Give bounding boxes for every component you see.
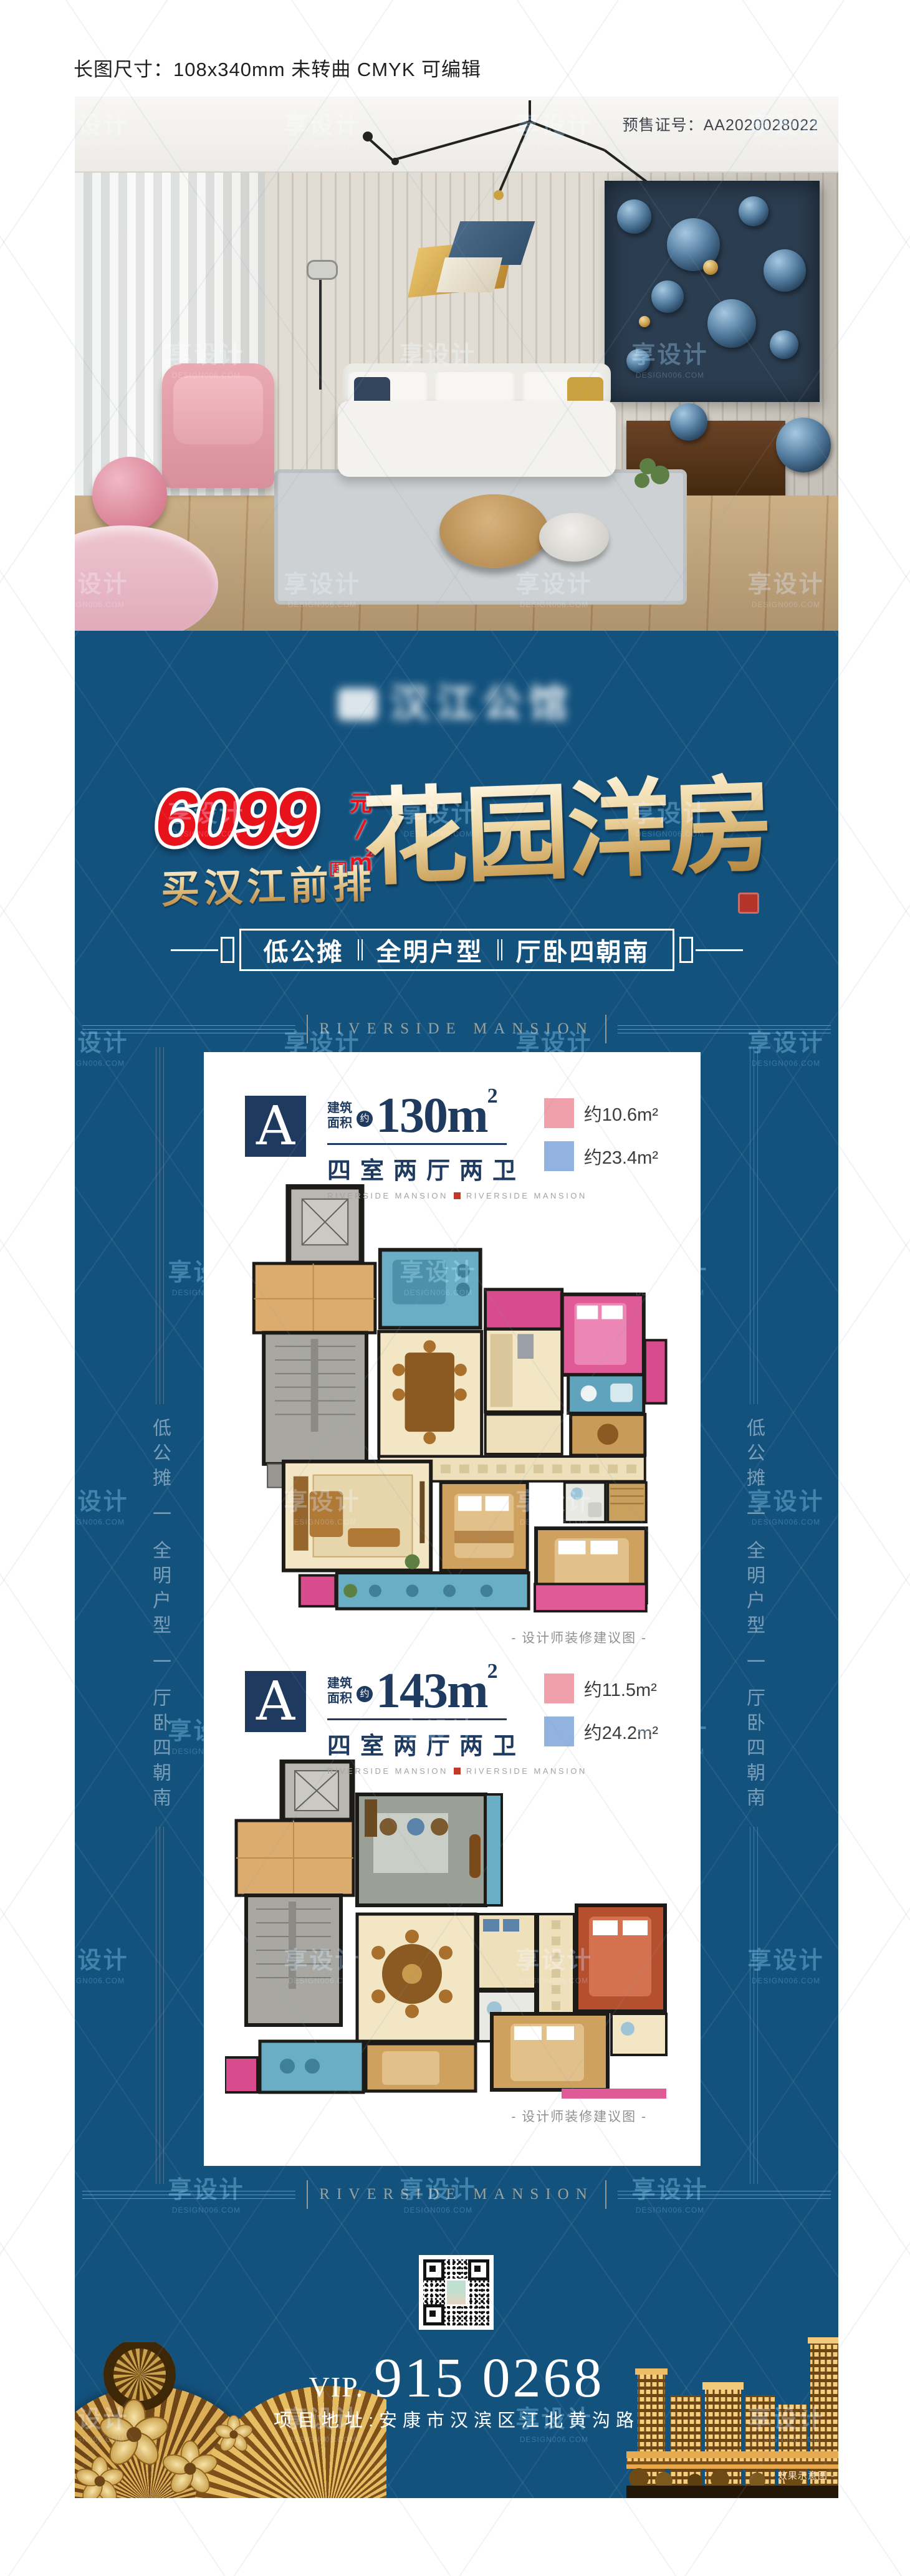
sofa-seat bbox=[338, 401, 616, 477]
banner-knob bbox=[221, 937, 234, 963]
unit-type-badge: A bbox=[245, 1671, 306, 1732]
blue-sphere bbox=[764, 249, 806, 292]
qr-center-photo bbox=[445, 2279, 467, 2306]
watermark-item: 享设计DESIGN006.COM bbox=[846, 335, 910, 380]
selling-points-banner: 低公摊 全明户型 厅卧四朝南 bbox=[75, 929, 838, 971]
floorplan-card: A 建筑面积 约 130m 2 四室两厅两卫 RIVERSIDE MANSION… bbox=[204, 1052, 701, 2166]
logo-text: 汉江公馆 bbox=[390, 682, 575, 725]
frame-side-left: 低公摊 一 全明户型 一 厅卧四朝南 bbox=[155, 1047, 165, 2184]
wall-art-geometric bbox=[414, 221, 552, 315]
rule-bar bbox=[307, 1015, 308, 1043]
rule-lines bbox=[750, 1827, 758, 2184]
logo-mark bbox=[338, 688, 378, 721]
blue-poster: 汉江公馆 6099 6099 元 ㎡ 起 买汉江前排 花园洋房 低公摊 全明户型… bbox=[75, 631, 838, 2498]
pink-stool bbox=[92, 457, 167, 532]
rule-lines bbox=[618, 2191, 831, 2199]
price-subtitle: 买汉江前排 bbox=[160, 852, 376, 914]
plan-caption: - 设计师装修建议图 - bbox=[204, 1628, 701, 1647]
plant bbox=[635, 458, 672, 498]
frame-title-bottom: RIVERSIDE MANSION bbox=[82, 2180, 831, 2209]
gold-sphere bbox=[703, 260, 718, 275]
qr-finder-icon bbox=[423, 2259, 444, 2281]
rule-bar bbox=[605, 2180, 606, 2209]
gold-sphere bbox=[639, 316, 650, 327]
vip-phone: VIP.915 0268 bbox=[75, 2346, 838, 2410]
banner-line bbox=[696, 949, 743, 951]
unit-type-badge: A bbox=[245, 1096, 306, 1157]
rule-lines bbox=[82, 1025, 295, 1033]
blue-swatch bbox=[544, 1141, 574, 1171]
floor-plan-image-130 bbox=[225, 1184, 680, 1621]
unit-a-130: A 建筑面积 约 130m 2 四室两厅两卫 RIVERSIDE MANSION… bbox=[204, 1096, 701, 1647]
ribbon: RIVERSIDE MANSIONRIVERSIDE MANSION bbox=[327, 1191, 587, 1200]
watermark-item: 享设计DESIGN006.COM bbox=[846, 794, 910, 838]
floor-lamp-head bbox=[307, 260, 338, 280]
area-legend: 约10.6m² 约23.4m² bbox=[544, 1098, 658, 1184]
banner-line bbox=[171, 949, 218, 951]
floor-plan-image-143 bbox=[225, 1760, 680, 2099]
floor-lamp bbox=[319, 274, 322, 390]
pink-armchair bbox=[162, 363, 274, 488]
plan-caption: - 设计师装修建议图 - bbox=[204, 2107, 701, 2125]
side-table bbox=[539, 513, 609, 562]
poster-page: 长图尺寸：108x340mm 未转曲 CMYK 可编辑 bbox=[0, 0, 910, 2576]
qr-code bbox=[419, 2255, 494, 2330]
blue-swatch bbox=[544, 1717, 574, 1746]
divider bbox=[497, 939, 502, 960]
blue-sphere bbox=[651, 280, 684, 313]
watermark-item: 享设计DESIGN006.COM bbox=[846, 1253, 910, 1297]
qr-finder-icon bbox=[468, 2259, 489, 2281]
qr-finder-icon bbox=[423, 2304, 444, 2325]
unit-header: A 建筑面积 约 130m 2 四室两厅两卫 RIVERSIDE MANSION… bbox=[245, 1096, 683, 1182]
rule-lines bbox=[156, 1047, 164, 1404]
coffee-table bbox=[439, 494, 548, 568]
frame-title-top: RIVERSIDE MANSION bbox=[82, 1015, 831, 1043]
rule-lines bbox=[750, 1047, 758, 1404]
unit-header: A 建筑面积 约 143m 2 四室两厅两卫 RIVERSIDE MANSION… bbox=[245, 1671, 683, 1757]
pink-swatch bbox=[544, 1098, 574, 1128]
unit-a-143: A 建筑面积 约 143m 2 四室两厅两卫 RIVERSIDE MANSION… bbox=[204, 1671, 701, 2125]
spec-line: 长图尺寸：108x340mm 未转曲 CMYK 可编辑 bbox=[74, 54, 481, 82]
rule-lines bbox=[82, 2191, 295, 2199]
watermark-item: 享设计DESIGN006.COM bbox=[846, 2170, 910, 2214]
red-square-icon bbox=[454, 1768, 461, 1774]
banner-box: 低公摊 全明户型 厅卧四朝南 bbox=[239, 929, 674, 971]
render-caption: - 效果示意图 - bbox=[771, 2469, 835, 2482]
ribbon: RIVERSIDE MANSIONRIVERSIDE MANSION bbox=[327, 1766, 587, 1776]
price-number: 6099 6099 bbox=[155, 780, 314, 858]
project-address: 项目地址:安康市汉滨区江北黄沟路 bbox=[75, 2406, 838, 2432]
blue-sphere bbox=[617, 199, 651, 234]
blue-sphere bbox=[776, 418, 831, 472]
watermark-item: 享设计DESIGN006.COM bbox=[846, 1712, 910, 1756]
area-legend: 约11.5m² 约24.2m² bbox=[544, 1673, 658, 1760]
blue-sphere bbox=[770, 330, 798, 359]
divider bbox=[358, 939, 363, 960]
frame-side-right: 低公摊 一 全明户型 一 厅卧四朝南 bbox=[749, 1047, 759, 2184]
rule-bar bbox=[605, 1015, 606, 1043]
headline-calligraphy: 花园洋房 bbox=[361, 768, 774, 896]
living-room-photo: 预售证号：AA2020028022 bbox=[75, 97, 838, 631]
blue-sphere bbox=[626, 349, 650, 373]
blue-sphere bbox=[707, 299, 756, 348]
presale-number: 预售证号：AA2020028022 bbox=[623, 113, 818, 135]
red-seal-stamp bbox=[738, 893, 759, 914]
red-square-icon bbox=[454, 1192, 461, 1199]
rule-lines bbox=[156, 1827, 164, 2184]
project-logo-blurred: 汉江公馆 bbox=[75, 672, 838, 728]
banner-knob bbox=[679, 937, 693, 963]
blue-sphere bbox=[670, 403, 707, 441]
rule-lines bbox=[618, 1025, 831, 1033]
pink-swatch bbox=[544, 1673, 574, 1703]
rule-bar bbox=[307, 2180, 308, 2209]
blue-sphere bbox=[739, 196, 769, 226]
